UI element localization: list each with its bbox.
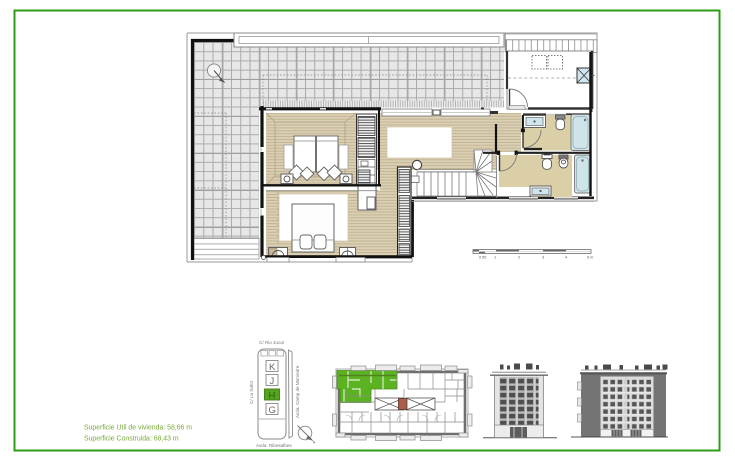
svg-text:K: K [269, 362, 276, 373]
svg-text:5 m: 5 m [587, 256, 593, 260]
svg-text:Avda. Camp de Morvedre: Avda. Camp de Morvedre [295, 365, 300, 418]
svg-text:C/ Rio Jucar: C/ Rio Jucar [259, 340, 285, 345]
svg-text:Superficie Util de vivienda: 5: Superficie Util de vivienda: 58,66 m [84, 425, 192, 432]
svg-text:Avda. Ribesalbes: Avda. Ribesalbes [256, 443, 292, 448]
svg-text:C/ La Safor: C/ La Safor [249, 380, 254, 404]
svg-text:2: 2 [518, 256, 520, 260]
svg-text:0.50: 0.50 [479, 256, 486, 260]
svg-text:1: 1 [494, 256, 496, 260]
svg-text:H: H [269, 391, 276, 402]
svg-text:4: 4 [565, 256, 567, 260]
svg-text:J: J [270, 376, 275, 387]
svg-text:G: G [269, 405, 276, 416]
svg-text:Superficie Construida: 68,43 m: Superficie Construida: 68,43 m [84, 436, 179, 443]
svg-text:3: 3 [542, 256, 544, 260]
